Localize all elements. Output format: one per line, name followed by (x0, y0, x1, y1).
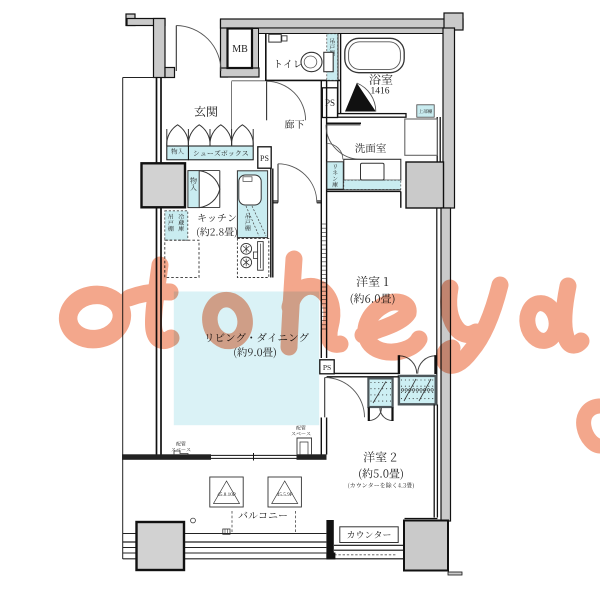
svg-text:PS: PS (260, 154, 269, 163)
svg-text:45.5.9P: 45.5.9P (277, 492, 293, 498)
svg-text:45.8.10P: 45.8.10P (217, 492, 236, 498)
svg-text:PS: PS (323, 363, 331, 372)
svg-text:1416: 1416 (371, 87, 390, 97)
svg-text:MB: MB (232, 44, 248, 55)
